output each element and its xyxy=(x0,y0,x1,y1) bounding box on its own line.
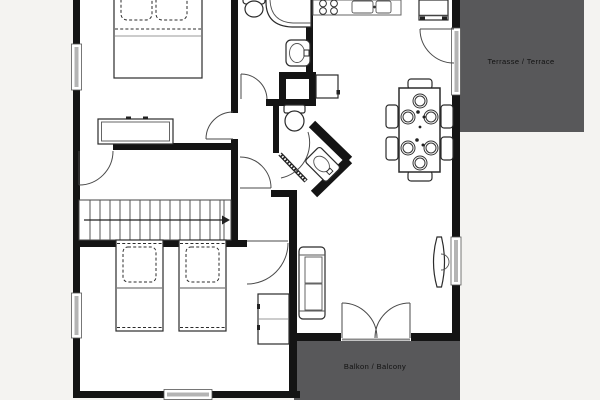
wall-living-bottom-b xyxy=(411,333,460,341)
wall-bottom-left xyxy=(73,391,164,398)
staircase xyxy=(79,200,231,240)
window-bedroom2 xyxy=(72,293,82,338)
wardrobe xyxy=(257,294,289,344)
wall-stair-right xyxy=(231,139,238,247)
dresser-knob xyxy=(143,117,148,120)
dresser xyxy=(98,117,173,145)
dresser-knob xyxy=(126,117,131,120)
wall-bottom-right xyxy=(212,391,300,398)
terrace-slab xyxy=(460,0,584,132)
wall-right-bottom xyxy=(452,285,460,341)
faucet xyxy=(304,50,309,56)
double-bed xyxy=(114,0,202,78)
single-bed-1 xyxy=(116,240,163,331)
wall-left-top xyxy=(73,0,80,44)
terrace-label: Terrasse / Terrace xyxy=(487,57,554,66)
wall-wc-left xyxy=(273,103,279,153)
toilet-wc xyxy=(284,105,305,131)
wall-right-top xyxy=(452,0,460,28)
floor-plan: Terrasse / Terrace Balkon / Balcony xyxy=(0,0,600,400)
wall-bedroom1-bottom-a xyxy=(73,143,78,150)
window-living-east xyxy=(451,237,461,285)
window-bedroom1 xyxy=(72,44,82,90)
terrace-area: Terrasse / Terrace xyxy=(460,0,584,132)
balcony-label: Balkon / Balcony xyxy=(344,362,406,371)
wardrobe-handle xyxy=(257,304,260,309)
balcony-area: Balkon / Balcony xyxy=(294,341,460,400)
fridge xyxy=(419,0,448,20)
single-bed-2 xyxy=(179,240,226,331)
duct-shaft-core xyxy=(286,79,309,99)
faucet xyxy=(373,6,376,9)
window-terrace-door-glass xyxy=(452,28,461,95)
dining-table xyxy=(399,88,440,172)
window-bedroom2-south xyxy=(164,390,212,400)
sofa xyxy=(299,247,325,319)
appliance xyxy=(316,75,340,98)
wall-living-bottom-a xyxy=(297,333,341,341)
wall-bedroom1-right xyxy=(231,0,238,113)
wall-left-mid xyxy=(73,90,80,293)
wall-left-bottom xyxy=(73,338,80,398)
wall-living-west xyxy=(289,193,297,398)
wash-basin-bathroom xyxy=(286,40,310,66)
floor-plan-drawing: Terrasse / Terrace Balkon / Balcony xyxy=(0,0,600,400)
wardrobe-handle xyxy=(257,325,260,330)
